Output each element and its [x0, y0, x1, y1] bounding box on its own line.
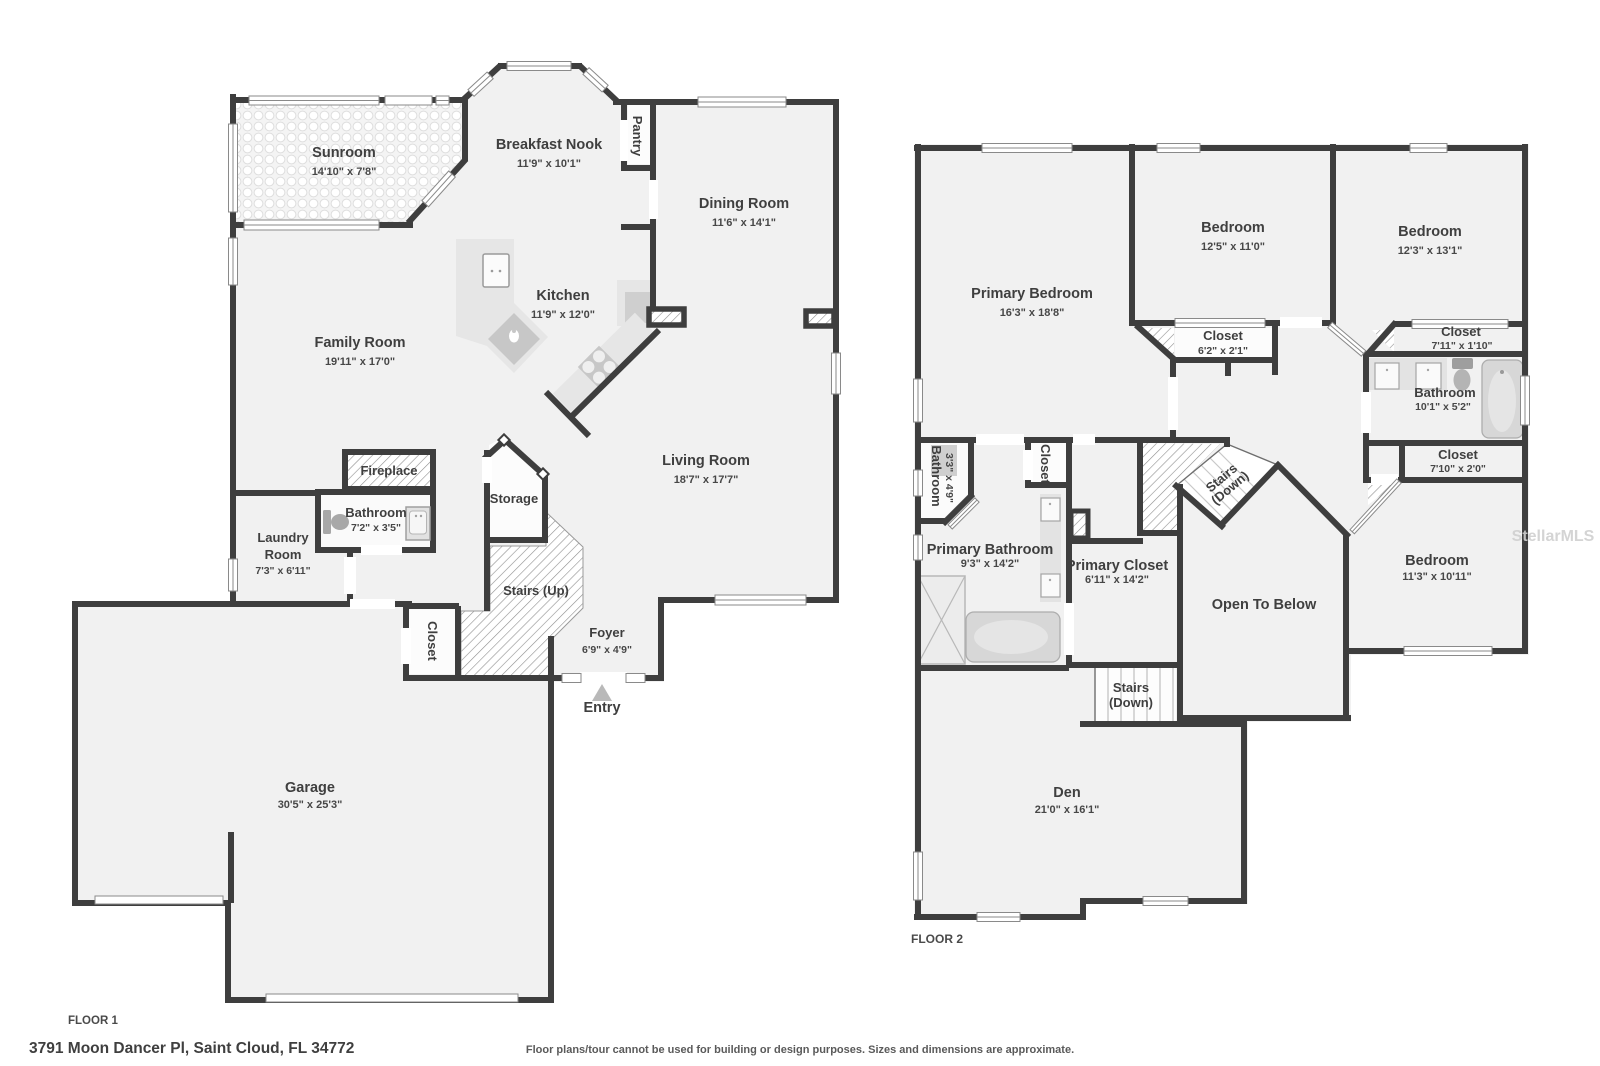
- svg-text:Primary Bedroom: Primary Bedroom: [971, 286, 1093, 302]
- svg-text:Family Room: Family Room: [314, 335, 405, 351]
- svg-text:11'3" x 10'11": 11'3" x 10'11": [1402, 571, 1472, 583]
- svg-text:18'7" x 17'7": 18'7" x 17'7": [674, 474, 739, 486]
- svg-text:Closet: Closet: [1441, 324, 1481, 339]
- svg-text:9'3" x 14'2": 9'3" x 14'2": [961, 558, 1019, 570]
- svg-text:Stairs: Stairs: [1113, 680, 1149, 695]
- svg-text:Bathroom: Bathroom: [1414, 385, 1475, 400]
- svg-text:10'1" x 5'2": 10'1" x 5'2": [1415, 401, 1471, 413]
- svg-text:(Down): (Down): [1109, 695, 1153, 710]
- svg-text:Closet: Closet: [1438, 447, 1478, 462]
- svg-text:6'9" x 4'9": 6'9" x 4'9": [582, 644, 632, 656]
- svg-text:Primary Bathroom: Primary Bathroom: [927, 542, 1054, 558]
- svg-text:19'11" x 17'0": 19'11" x 17'0": [325, 356, 395, 368]
- svg-text:Living Room: Living Room: [662, 453, 750, 469]
- svg-text:6'2" x 2'1": 6'2" x 2'1": [1198, 345, 1248, 357]
- svg-text:Kitchen: Kitchen: [536, 288, 589, 304]
- svg-text:Bedroom: Bedroom: [1201, 220, 1265, 236]
- svg-text:11'9" x 10'1": 11'9" x 10'1": [517, 158, 581, 170]
- svg-text:Laundry: Laundry: [257, 530, 309, 545]
- svg-text:21'0" x 16'1": 21'0" x 16'1": [1035, 804, 1100, 816]
- svg-text:7'10" x 2'0": 7'10" x 2'0": [1430, 463, 1486, 475]
- svg-text:Entry: Entry: [583, 700, 620, 716]
- svg-text:3791 Moon Dancer Pl, Saint Clo: 3791 Moon Dancer Pl, Saint Cloud, FL 347…: [29, 1040, 354, 1057]
- svg-text:Bathroom: Bathroom: [345, 505, 406, 520]
- svg-text:Fireplace: Fireplace: [360, 463, 417, 478]
- svg-text:Garage: Garage: [285, 780, 335, 796]
- svg-text:Breakfast Nook: Breakfast Nook: [496, 137, 603, 153]
- svg-text:30'5" x 25'3": 30'5" x 25'3": [278, 799, 343, 811]
- svg-text:3'3" x 4'9": 3'3" x 4'9": [943, 453, 955, 503]
- svg-text:Room: Room: [265, 547, 302, 562]
- svg-text:Floor plans/tour cannot be use: Floor plans/tour cannot be used for buil…: [526, 1044, 1074, 1056]
- svg-text:Bathroom: Bathroom: [929, 445, 944, 506]
- svg-text:12'5" x 11'0": 12'5" x 11'0": [1201, 241, 1265, 253]
- svg-text:Closet: Closet: [425, 621, 440, 661]
- svg-text:Stairs (Up): Stairs (Up): [503, 583, 569, 598]
- svg-text:Bedroom: Bedroom: [1405, 553, 1469, 569]
- svg-text:FLOOR 1: FLOOR 1: [68, 1015, 118, 1027]
- svg-text:6'11" x 14'2": 6'11" x 14'2": [1085, 574, 1149, 586]
- svg-text:7'3" x 6'11": 7'3" x 6'11": [255, 565, 310, 577]
- svg-text:Sunroom: Sunroom: [312, 145, 376, 161]
- svg-text:11'9" x 12'0": 11'9" x 12'0": [531, 309, 595, 321]
- svg-text:14'10" x 7'8": 14'10" x 7'8": [312, 166, 377, 178]
- svg-text:Closet: Closet: [1038, 444, 1053, 484]
- svg-text:Bedroom: Bedroom: [1398, 224, 1462, 240]
- svg-text:7'2" x 3'5": 7'2" x 3'5": [351, 522, 401, 534]
- svg-text:16'3" x 18'8": 16'3" x 18'8": [1000, 307, 1065, 319]
- svg-text:Closet: Closet: [1203, 328, 1243, 343]
- svg-text:Dining Room: Dining Room: [699, 196, 789, 212]
- svg-text:Storage: Storage: [490, 491, 538, 506]
- svg-text:Primary Closet: Primary Closet: [1066, 558, 1169, 574]
- svg-text:Pantry: Pantry: [630, 116, 645, 157]
- svg-text:Den: Den: [1053, 785, 1080, 801]
- svg-text:Open To Below: Open To Below: [1212, 597, 1317, 613]
- svg-text:12'3" x 13'1": 12'3" x 13'1": [1398, 245, 1463, 257]
- svg-text:FLOOR 2: FLOOR 2: [911, 932, 963, 946]
- svg-text:7'11" x 1'10": 7'11" x 1'10": [1431, 340, 1492, 352]
- svg-text:Foyer: Foyer: [589, 625, 624, 640]
- svg-text:11'6" x 14'1": 11'6" x 14'1": [712, 217, 776, 229]
- svg-text:StellarMLS: StellarMLS: [1512, 528, 1595, 545]
